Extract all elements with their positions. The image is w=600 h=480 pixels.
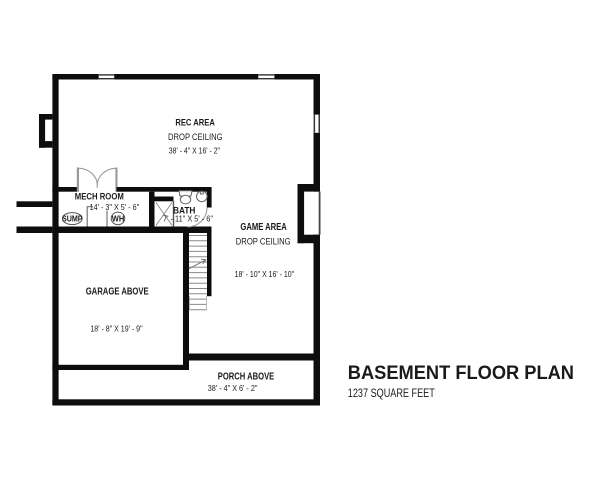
svg-text:18' - 10" X 16' - 10": 18' - 10" X 16' - 10" xyxy=(235,269,295,279)
svg-text:38' - 4" X 16' - 2": 38' - 4" X 16' - 2" xyxy=(169,146,220,156)
svg-text:7' - 11" X 5' - 6": 7' - 11" X 5' - 6" xyxy=(163,214,213,224)
svg-text:WH: WH xyxy=(112,214,125,224)
svg-text:GAME AREA: GAME AREA xyxy=(240,222,286,233)
svg-text:SUMP: SUMP xyxy=(62,214,83,224)
svg-text:BASEMENT FLOOR PLAN: BASEMENT FLOOR PLAN xyxy=(348,362,574,384)
svg-text:1237 SQUARE FEET: 1237 SQUARE FEET xyxy=(348,388,435,400)
svg-text:18' - 8" X 19' - 9": 18' - 8" X 19' - 9" xyxy=(90,324,142,334)
svg-text:REC AREA: REC AREA xyxy=(175,118,215,128)
svg-text:MECH ROOM: MECH ROOM xyxy=(75,192,124,202)
svg-text:DROP CEILING: DROP CEILING xyxy=(168,132,223,142)
svg-text:DROP CEILING: DROP CEILING xyxy=(236,237,291,247)
svg-text:PORCH ABOVE: PORCH ABOVE xyxy=(218,371,275,382)
svg-text:38' - 4" X 6' - 2": 38' - 4" X 6' - 2" xyxy=(208,383,258,393)
svg-text:14' - 3" X 5' - 6": 14' - 3" X 5' - 6" xyxy=(90,202,140,212)
svg-text:GARAGE ABOVE: GARAGE ABOVE xyxy=(86,287,149,298)
